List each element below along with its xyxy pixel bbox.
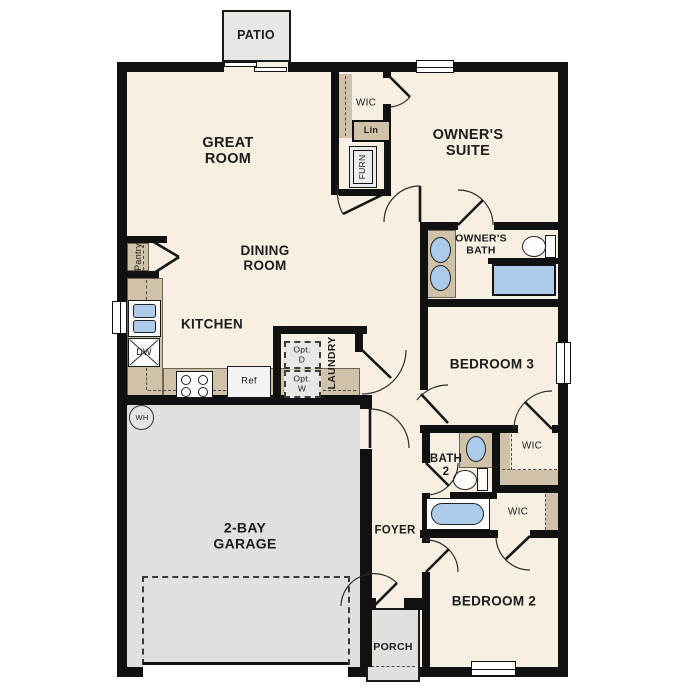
- label-pantry: Pantry: [133, 243, 143, 271]
- burner: [198, 387, 208, 397]
- closet-label-owners-wic: WIC: [356, 97, 376, 108]
- wall-segment: [384, 140, 391, 196]
- wall-segment: [420, 425, 518, 433]
- wall-segment: [404, 598, 422, 610]
- wall-segment: [420, 530, 498, 538]
- wall-segment: [420, 307, 428, 390]
- floor-plan: PATIO GREAT ROOM WIC Lin FURN OWNER'S SU…: [0, 0, 687, 687]
- label-furnace: FURN: [358, 155, 368, 180]
- cabinet-line-left: [146, 280, 147, 300]
- window-mullion: [417, 67, 453, 68]
- burner: [181, 375, 191, 385]
- label-water-heater: WH: [135, 414, 148, 422]
- wic1-rod-left: [511, 434, 512, 470]
- owners-toilet-tank: [545, 235, 556, 258]
- bedroom2-window: [471, 661, 516, 676]
- owners-toilet-bowl: [522, 236, 546, 257]
- room-label-porch: PORCH: [373, 642, 412, 654]
- wall-segment: [492, 485, 568, 493]
- closet-label-wic2: WIC: [508, 506, 528, 517]
- wall-segment: [360, 598, 376, 610]
- wall-segment: [355, 326, 363, 352]
- garage-door-dashed-outline: [142, 576, 350, 665]
- wall-segment: [552, 425, 568, 433]
- bath2-toilet-tank: [477, 468, 488, 491]
- wall-segment: [422, 433, 430, 463]
- room-label-owners-bath: OWNER'S BATH: [455, 233, 507, 257]
- kitchen-sink: [128, 300, 161, 337]
- wall-segment: [494, 222, 568, 230]
- window-mullion: [564, 343, 565, 383]
- owners-bath-sink: [430, 237, 451, 263]
- closet-label-wic1: WIC: [522, 440, 542, 451]
- wic1-rod-bottom: [497, 469, 557, 470]
- room-label-foyer: FOYER: [374, 525, 415, 538]
- sink-bowl: [133, 304, 156, 318]
- wic2-shelf-right: [546, 493, 558, 530]
- wall-segment: [422, 538, 430, 543]
- wall-segment: [420, 222, 428, 307]
- room-label-great-room: GREAT ROOM: [202, 135, 253, 167]
- wall-segment: [420, 299, 568, 307]
- label-optional-dryer: Opt. D: [293, 345, 310, 364]
- wall-segment: [383, 72, 391, 78]
- room-label-patio: PATIO: [237, 28, 275, 42]
- range: [176, 371, 213, 398]
- bath2-tub: [426, 498, 490, 530]
- room-label-bedroom3: BEDROOM 3: [450, 356, 534, 371]
- room-label-kitchen: KITCHEN: [181, 316, 243, 331]
- wall-segment: [360, 395, 372, 409]
- bedroom3-window: [556, 342, 571, 384]
- window-mullion: [120, 302, 121, 333]
- wall-segment: [273, 326, 281, 405]
- burner: [181, 387, 191, 397]
- room-label-owners-suite: OWNER'S SUITE: [433, 127, 504, 159]
- room-label-dining-room: DINING ROOM: [240, 243, 289, 273]
- owners-wic-rod: [345, 76, 346, 136]
- owners-bath-sink: [430, 265, 451, 291]
- cabinet-line-left2: [146, 368, 147, 390]
- pantry-rod: [143, 245, 144, 270]
- bath2-tub-basin: [431, 503, 484, 525]
- window-mullion: [472, 669, 515, 670]
- wall-segment: [530, 530, 568, 538]
- wall-segment: [331, 72, 339, 195]
- sink-bowl: [133, 320, 156, 333]
- porch-step-line: [371, 666, 415, 667]
- closet-label-linen: Lin: [364, 125, 378, 135]
- label-optional-washer: Opt. W: [293, 374, 310, 393]
- room-label-bath2: BATH 2: [430, 453, 462, 479]
- wall-segment: [492, 428, 500, 492]
- wall-segment: [360, 449, 372, 667]
- wic1-shelf-bottom: [496, 470, 558, 485]
- burner: [198, 375, 208, 385]
- wall-segment: [422, 572, 430, 667]
- label-refrigerator: Ref: [241, 377, 257, 388]
- bath2-sink: [466, 436, 486, 462]
- room-label-laundry: LAUNDRY: [327, 336, 339, 389]
- wall-segment: [273, 326, 367, 334]
- label-dishwasher: DW: [136, 347, 152, 357]
- patio-sliding-door: [254, 67, 287, 72]
- room-label-garage: 2-BAY GARAGE: [213, 520, 276, 551]
- patio-sliding-door: [224, 62, 257, 67]
- wall-segment: [117, 271, 159, 278]
- owners-suite-window: [416, 60, 454, 73]
- garage-door: [143, 662, 348, 677]
- wic2-rod: [545, 494, 546, 530]
- room-label-bedroom2: BEDROOM 2: [452, 593, 536, 608]
- owners-bath-tub: [492, 264, 556, 296]
- kitchen-window: [112, 301, 127, 334]
